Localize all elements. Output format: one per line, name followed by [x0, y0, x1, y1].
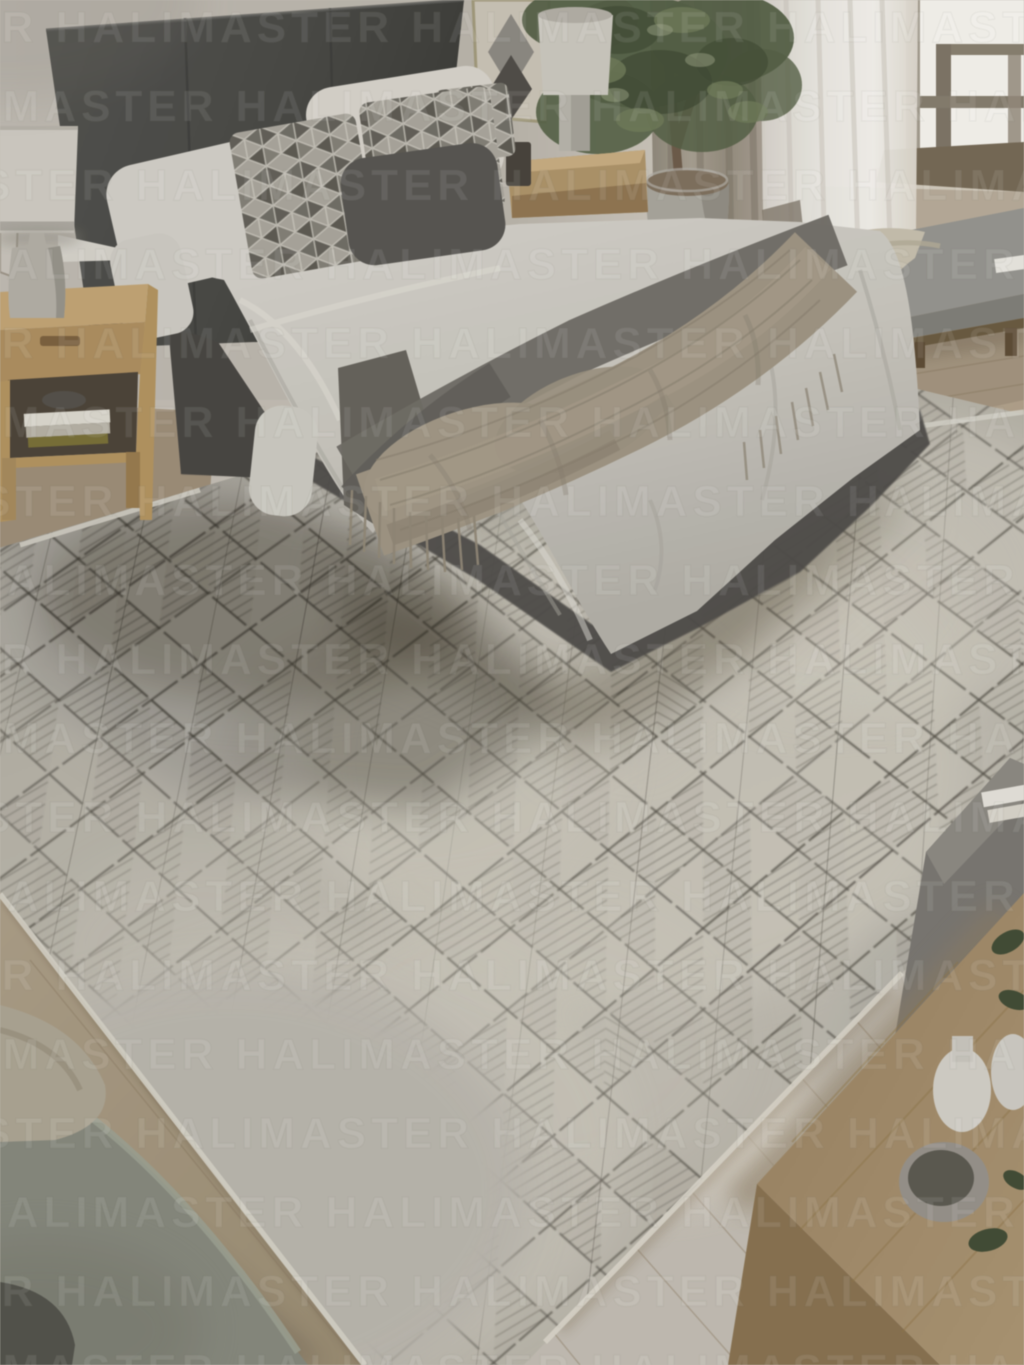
svg-text:HALIMASTER HALIMASTER HALIMAST: HALIMASTER HALIMASTER HALIMASTER HALIMAS… [0, 319, 1024, 368]
svg-text:HALIMASTER HALIMASTER HALIMAST: HALIMASTER HALIMASTER HALIMASTER HALIMAS… [0, 951, 1024, 1000]
svg-text:HALIMASTER HALIMASTER HALIMAST: HALIMASTER HALIMASTER HALIMASTER HALIMAS… [0, 3, 1024, 52]
svg-text:HALIMASTER HALIMASTER HALIMAST: HALIMASTER HALIMASTER HALIMASTER HALIMAS… [0, 635, 1024, 684]
svg-text:HALIMASTER HALIMASTER HALIMAST: HALIMASTER HALIMASTER HALIMASTER HALIMAS… [0, 240, 1024, 289]
svg-text:HALIMASTER HALIMASTER HALIMAST: HALIMASTER HALIMASTER HALIMASTER HALIMAS… [0, 872, 1024, 921]
svg-text:HALIMASTER HALIMASTER HALIMAST: HALIMASTER HALIMASTER HALIMASTER HALIMAS… [0, 793, 1024, 842]
svg-text:HALIMASTER HALIMASTER HALIMAST: HALIMASTER HALIMASTER HALIMASTER HALIMAS… [0, 1346, 1024, 1365]
svg-text:HALIMASTER HALIMASTER HALIMAST: HALIMASTER HALIMASTER HALIMASTER HALIMAS… [0, 714, 1024, 763]
svg-text:HALIMASTER HALIMASTER HALIMAST: HALIMASTER HALIMASTER HALIMASTER HALIMAS… [0, 1109, 1024, 1158]
svg-text:HALIMASTER HALIMASTER HALIMAST: HALIMASTER HALIMASTER HALIMASTER HALIMAS… [0, 477, 1024, 526]
svg-text:HALIMASTER HALIMASTER HALIMAST: HALIMASTER HALIMASTER HALIMASTER HALIMAS… [0, 82, 1024, 131]
svg-text:HALIMASTER HALIMASTER HALIMAST: HALIMASTER HALIMASTER HALIMASTER HALIMAS… [0, 556, 1024, 605]
svg-text:HALIMASTER HALIMASTER HALIMAST: HALIMASTER HALIMASTER HALIMASTER HALIMAS… [0, 398, 1024, 447]
svg-text:HALIMASTER HALIMASTER HALIMAST: HALIMASTER HALIMASTER HALIMASTER HALIMAS… [0, 1188, 1024, 1237]
svg-text:HALIMASTER HALIMASTER HALIMAST: HALIMASTER HALIMASTER HALIMASTER HALIMAS… [0, 1030, 1024, 1079]
svg-text:HALIMASTER HALIMASTER HALIMAST: HALIMASTER HALIMASTER HALIMASTER HALIMAS… [0, 1267, 1024, 1316]
svg-text:HALIMASTER HALIMASTER HALIMAST: HALIMASTER HALIMASTER HALIMASTER HALIMAS… [0, 161, 1024, 210]
